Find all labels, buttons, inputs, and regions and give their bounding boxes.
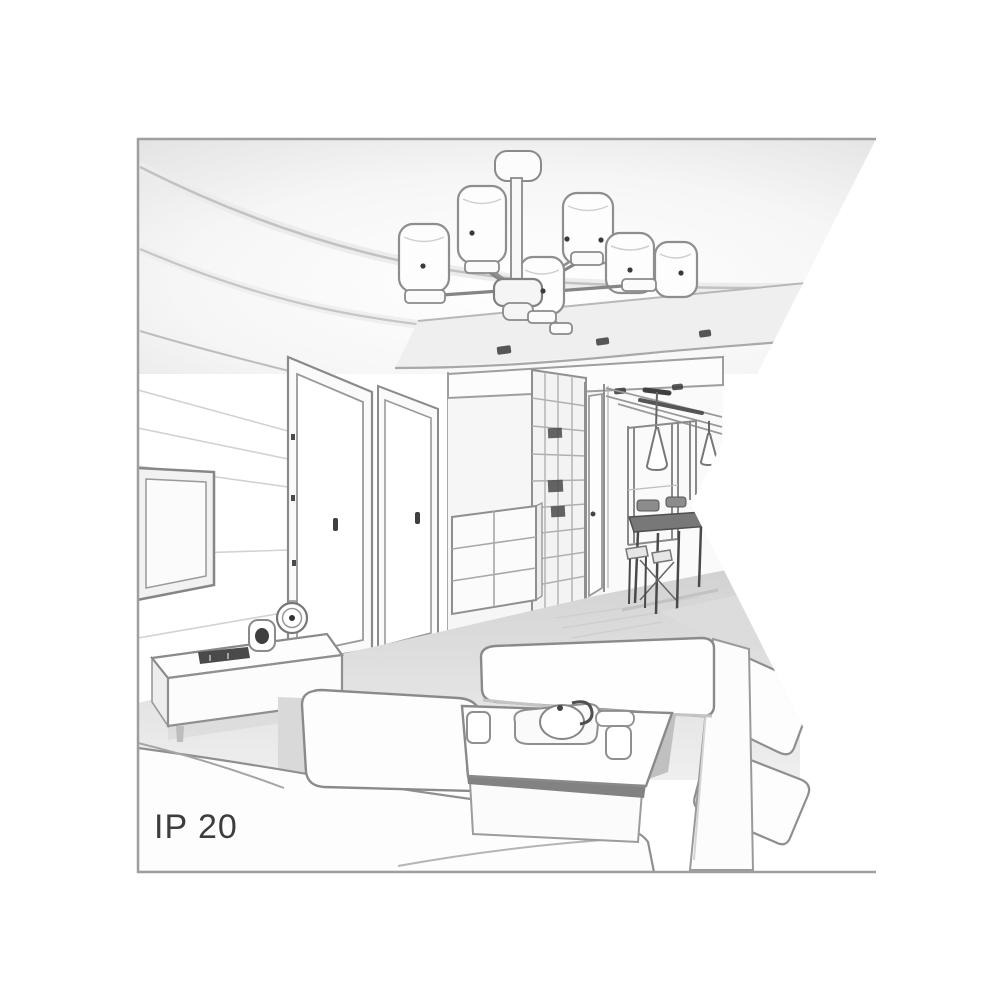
stool-seat xyxy=(626,546,648,559)
door-handle-icon xyxy=(591,512,596,517)
door-handle-icon xyxy=(415,512,420,524)
pendant-cord xyxy=(656,392,657,428)
chandelier-hub xyxy=(494,279,542,306)
stool-seat xyxy=(652,550,672,563)
ceiling-canopy xyxy=(495,151,541,181)
cup-icon xyxy=(467,712,490,743)
chair-back xyxy=(666,497,686,507)
sideboard-leg xyxy=(176,726,184,742)
doors xyxy=(288,357,448,664)
teapot-knob xyxy=(557,705,563,711)
dish xyxy=(596,711,634,726)
chandelier-stem xyxy=(511,178,522,282)
ip-rating-label: IP 20 xyxy=(154,808,238,846)
chest-of-drawers xyxy=(452,503,542,614)
chair-back xyxy=(637,500,659,511)
cup-icon xyxy=(606,726,631,759)
tv-screen xyxy=(146,479,206,588)
door-right-panel xyxy=(385,400,431,645)
product-illustration-page: IP 20 xyxy=(0,0,1000,1000)
clock-center xyxy=(289,615,295,621)
room-sketch-illustration: IP 20 xyxy=(0,0,1000,1000)
spotlight-icon xyxy=(672,383,684,390)
door-handle-icon xyxy=(333,518,338,531)
speaker-cone xyxy=(255,628,269,644)
